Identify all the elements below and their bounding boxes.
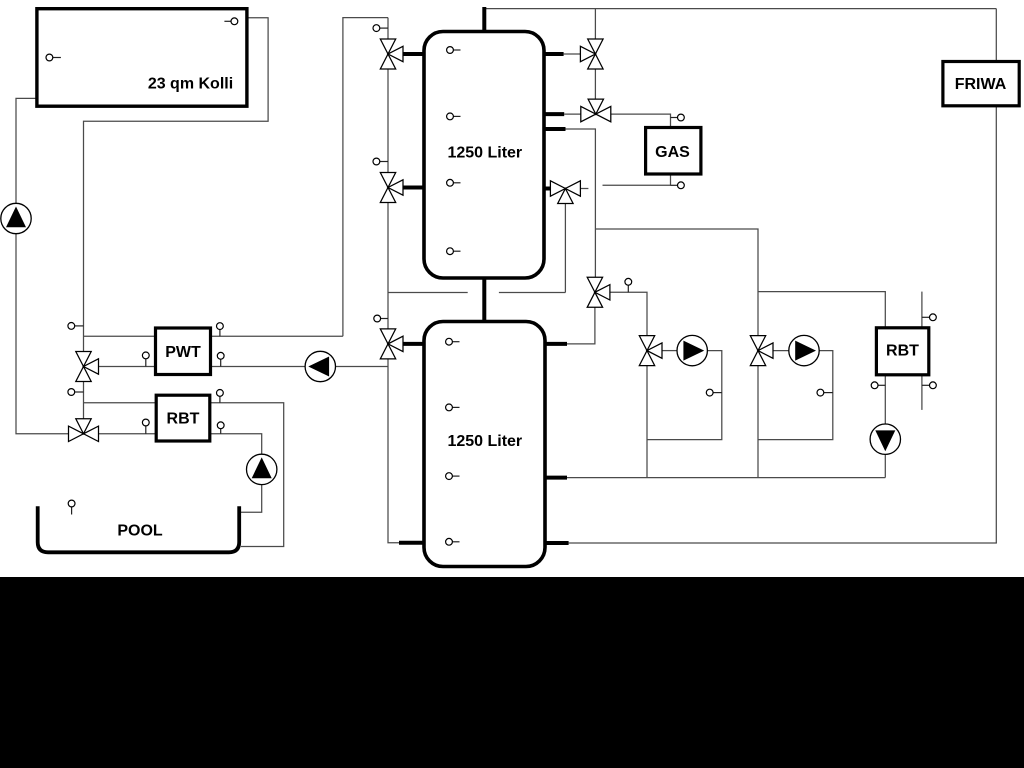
svg-text:RBT: RBT [167,411,200,428]
svg-text:1250 Liter: 1250 Liter [447,433,522,450]
svg-text:1250 Liter: 1250 Liter [447,144,522,161]
svg-text:PWT: PWT [165,344,201,361]
svg-text:FRIWA: FRIWA [955,76,1007,93]
svg-text:GAS: GAS [655,144,690,161]
svg-text:23 qm Kolli: 23 qm Kolli [148,75,233,92]
svg-text:RBT: RBT [886,342,919,359]
svg-text:POOL: POOL [117,523,163,540]
